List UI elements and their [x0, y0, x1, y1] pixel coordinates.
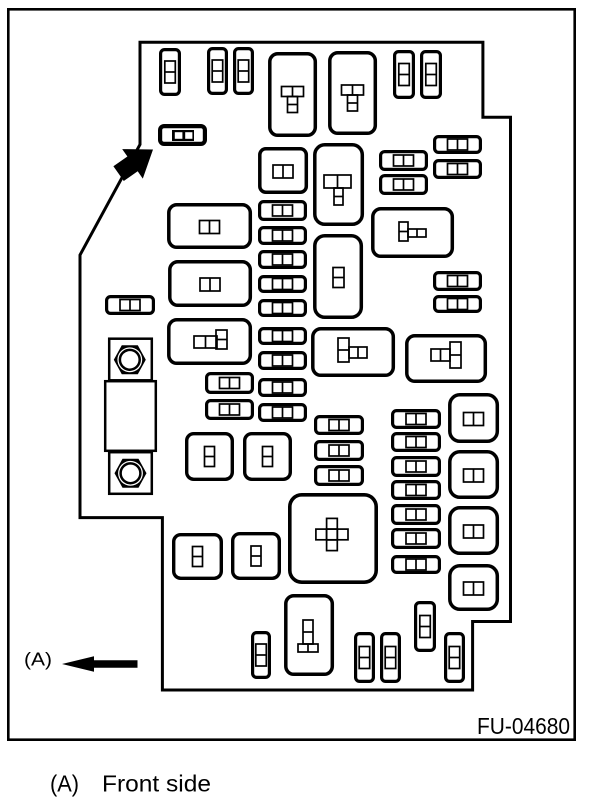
- svg-text:(A): (A): [50, 771, 79, 797]
- svg-text:Front side: Front side: [102, 771, 211, 797]
- svg-text:FU-04680: FU-04680: [477, 713, 570, 739]
- svg-text:(A): (A): [24, 649, 52, 670]
